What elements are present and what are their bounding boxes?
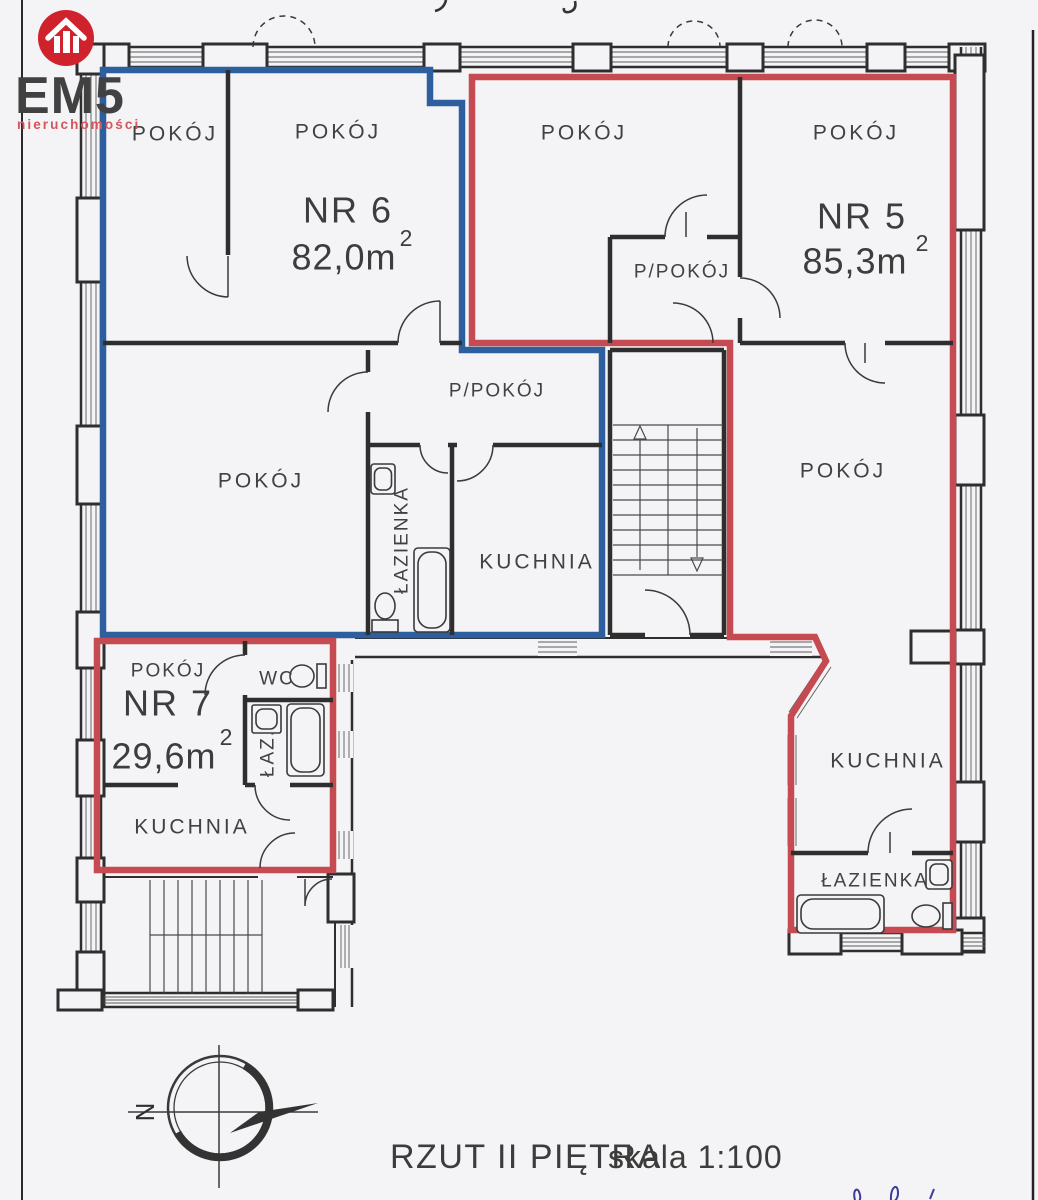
toilet-icon — [912, 905, 940, 927]
apt5-room-label: POKÓJ — [800, 460, 886, 483]
scanned-floor-plan-page: POKÓJ POKÓJ NR 6 82,0m 2 POKÓJ P/POKÓJ Ł… — [0, 0, 1038, 1200]
apt5-room-label: POKÓJ — [813, 122, 899, 145]
apt7-area: 29,6m — [111, 736, 216, 777]
apt7-kitchen-label: KUCHNIA — [134, 816, 250, 839]
floor-plan-drawing: POKÓJ POKÓJ NR 6 82,0m 2 POKÓJ P/POKÓJ Ł… — [0, 0, 1038, 1200]
apt7-wc-label: WC — [259, 669, 295, 690]
apt5-area: 85,3m — [802, 241, 907, 282]
apt6-room-label: POKÓJ — [132, 123, 218, 146]
apt6-room-label: POKÓJ — [218, 470, 304, 493]
apt5-number: NR 5 — [817, 196, 907, 237]
apt6-kitchen-label: KUCHNIA — [479, 551, 595, 574]
central-staircase — [613, 425, 723, 575]
balcony-door-swing-arcs — [253, 16, 842, 47]
signature-fragment — [854, 1187, 934, 1200]
apt6-room-label: POKÓJ — [295, 121, 381, 144]
logo-tagline-text: nieruchomości — [17, 117, 140, 132]
agency-logo: EM5 nieruchomości — [15, 10, 140, 132]
compass-rose: N — [128, 1045, 318, 1188]
apt6-hall-label: P/POKÓJ — [449, 380, 545, 402]
apt6-area-sup: 2 — [400, 225, 413, 251]
apt7-room-label: POKÓJ — [131, 660, 205, 682]
caption: RZUT II PIĘTRA skala 1:100 — [390, 1138, 783, 1176]
apt7-bath-label: ŁAZ. — [258, 729, 279, 777]
compass-needle — [230, 1103, 318, 1133]
toilet-icon — [375, 593, 395, 619]
apt5-kitchen-label: KUCHNIA — [830, 750, 946, 773]
apt6-area: 82,0m — [291, 237, 396, 278]
apt5-room-label: POKÓJ — [541, 122, 627, 145]
courtyard-north-wall — [355, 631, 955, 718]
apt5-area-sup: 2 — [916, 230, 929, 256]
apt5-hall-label: P/POKÓJ — [634, 261, 730, 283]
compass-north-label: N — [130, 1103, 160, 1122]
plan-scale: skala 1:100 — [608, 1139, 783, 1175]
left-wing-south-wall — [58, 990, 333, 1010]
apt7-number: NR 7 — [123, 683, 213, 724]
outer-wall-east — [955, 47, 984, 952]
stairs-up-arrow — [634, 426, 646, 439]
apt7-area-sup: 2 — [220, 724, 233, 750]
cropped-title-fragment — [435, 0, 575, 12]
apt5-bath-label: ŁAZIENKA — [821, 871, 929, 892]
apt6-bath-label: ŁAZIENKA — [392, 486, 413, 594]
apt6-number: NR 6 — [303, 190, 393, 231]
scan-border-lines — [22, 0, 1033, 1200]
apt7-wc-fixtures — [290, 664, 326, 688]
entrance-staircase — [150, 880, 262, 993]
outer-wall-north — [95, 16, 985, 71]
